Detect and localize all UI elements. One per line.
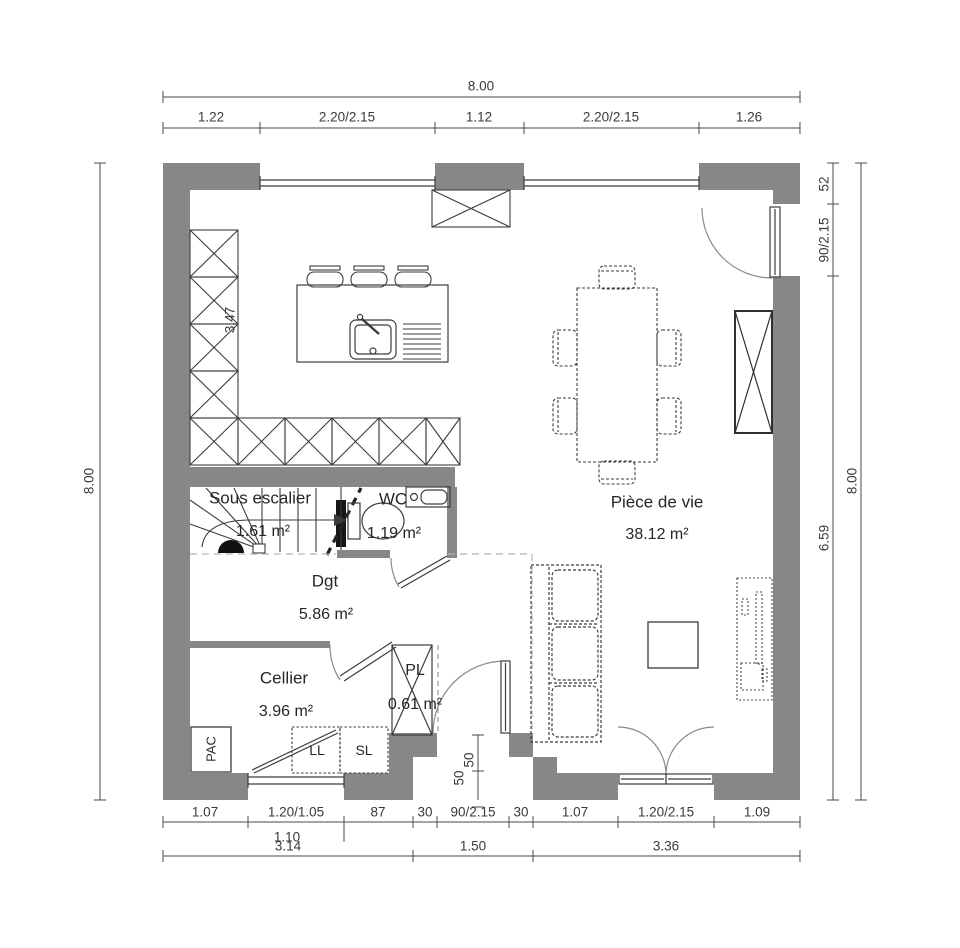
room-label-wc: WC [379, 491, 407, 508]
dim-bottom1-6: 1.07 [562, 805, 588, 819]
dim-left-total: 8.00 [82, 468, 96, 494]
dim-bottom1-7: 1.20/2.15 [638, 805, 694, 819]
wardrobe [735, 311, 772, 433]
kitchen-island [297, 285, 448, 362]
dim-bottom1-8: 1.09 [744, 805, 770, 819]
dim-bottom2-0: 3.14 [275, 839, 301, 853]
room-boundaries [190, 554, 532, 732]
pac-label: PAC [205, 736, 218, 762]
cabinet-top-pier [432, 190, 510, 227]
room-label-cellier: Cellier [260, 670, 308, 687]
dim-bottom2-2: 3.36 [653, 839, 679, 853]
wc-door [391, 556, 450, 588]
window-top-1 [260, 176, 435, 190]
dim-right-seg-1: 90/2.15 [817, 217, 831, 262]
window-top-2 [524, 176, 699, 190]
floor-plan: Sous escalier 1.61 m² WC 1.19 m² Dgt 5.8… [0, 0, 960, 948]
hand-basin [406, 487, 450, 507]
dim-recess-a: 50 [452, 770, 466, 785]
sofa [531, 565, 601, 742]
dining-table [553, 266, 681, 484]
ll-label: LL [309, 743, 325, 757]
dim-bottom1-0: 1.07 [192, 805, 218, 819]
dim-bottom1-2: 87 [370, 805, 385, 819]
rear-door [433, 661, 510, 733]
room-label-pl: PL [405, 663, 425, 679]
pl-closet [392, 645, 438, 735]
room-label-sous-escalier: Sous escalier [209, 490, 311, 507]
french-door [618, 727, 714, 784]
coffee-table [648, 622, 698, 668]
window-cellier [248, 730, 344, 788]
dim-top-seg-0: 1.22 [198, 110, 224, 124]
room-area-pl: 0.61 m² [388, 697, 442, 713]
washer-dryer-boxes [292, 727, 388, 773]
cellier-door [330, 642, 396, 681]
bar-stools [307, 266, 431, 287]
dim-bottom1-3: 30 [417, 805, 432, 819]
dim-right-seg-0: 52 [817, 176, 831, 191]
tv-unit [737, 578, 772, 700]
dim-top-total: 8.00 [468, 79, 494, 93]
room-area-dgt: 5.86 m² [299, 607, 353, 623]
sl-label: SL [355, 743, 372, 757]
dim-bottom1-5: 30 [513, 805, 528, 819]
drainboard [403, 324, 441, 359]
dim-bottom1-1: 1.20/1.05 [268, 805, 324, 819]
room-area-cellier: 3.96 m² [259, 704, 313, 720]
dim-right-total: 8.00 [845, 468, 859, 494]
room-area-sous-escalier: 1.61 m² [236, 524, 290, 540]
dim-bottom1-4: 90/2.15 [450, 805, 495, 819]
room-area-wc: 1.19 m² [367, 526, 421, 542]
entry-door [702, 207, 780, 278]
room-area-piece-de-vie: 38.12 m² [625, 527, 688, 543]
dim-right-seg-2: 6.59 [817, 525, 831, 551]
room-label-dgt: Dgt [312, 573, 338, 590]
dim-bottom2-1: 1.50 [460, 839, 486, 853]
dim-top-seg-2: 1.12 [466, 110, 492, 124]
dim-top-seg-1: 2.20/2.15 [319, 110, 375, 124]
dim-kitchen-depth: 3.47 [223, 307, 237, 333]
room-label-piece-de-vie: Pièce de vie [611, 494, 704, 511]
dim-recess-b: 50 [462, 752, 476, 767]
dim-top-seg-3: 2.20/2.15 [583, 110, 639, 124]
kitchen-cabinets-row [190, 418, 460, 465]
dim-top-seg-4: 1.26 [736, 110, 762, 124]
